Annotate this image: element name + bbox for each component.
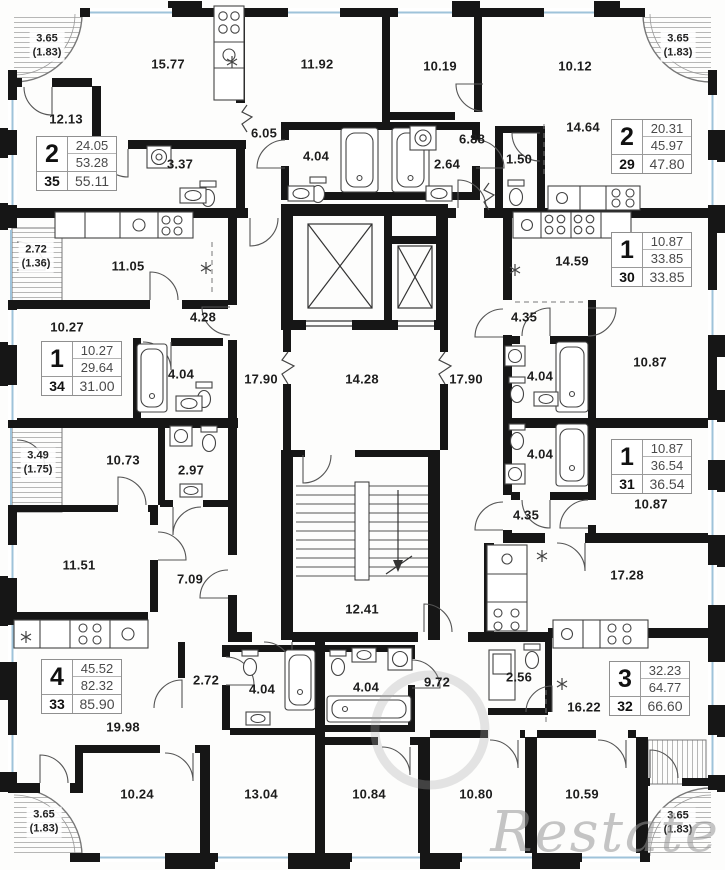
room-area-label: 10.87 [633, 355, 667, 370]
room-area-label: 3.37 [167, 157, 193, 172]
balcony-area-reduced: (1.83) [33, 47, 62, 59]
room-area-label: 16.22 [567, 700, 601, 715]
apartment-living-area: 10.27 [73, 342, 121, 359]
room-area-label: 10.84 [352, 787, 386, 802]
room-area-label: 10.73 [106, 453, 140, 468]
room-area-label: 15.77 [151, 57, 185, 72]
room-area-label: 1.50 [506, 152, 532, 167]
room-area-label: 6.05 [251, 126, 277, 141]
balcony-area: 3.65 [36, 33, 57, 45]
apartment-area: 36.54 [643, 457, 691, 474]
room-area-label: 10.80 [459, 787, 493, 802]
balcony-area-label: 3.65(1.83) [27, 807, 62, 838]
room-area-label: 19.98 [106, 720, 140, 735]
apartment-area: 64.77 [641, 679, 689, 696]
room-area-label: 17.90 [449, 372, 483, 387]
room-area-label: 4.04 [353, 680, 379, 695]
apartment-rooms-count: 1 [42, 342, 73, 376]
apartment-card: 1 10.87 36.54 31 36.54 [611, 439, 692, 494]
room-area-label: 9.72 [424, 675, 450, 690]
room-area-label: 4.04 [168, 367, 194, 382]
floor-plan: 15.77 12.13 3.37 6.05 11.92 4.04 2.64 10… [0, 0, 725, 870]
apartment-number: 31 [612, 474, 643, 493]
apartment-card: 2 20.31 45.97 29 47.80 [611, 119, 692, 174]
room-area-label: 4.35 [513, 508, 539, 523]
room-area-label: 14.59 [555, 254, 589, 269]
room-area-label: 2.72 [193, 673, 219, 688]
balcony-area: 2.72 [25, 244, 46, 256]
apartment-living-area: 20.31 [643, 120, 691, 137]
room-area-label: 17.28 [610, 568, 644, 583]
room-area-label: 11.92 [301, 57, 334, 72]
balcony-area-reduced: (1.83) [664, 824, 693, 836]
apartment-number: 35 [37, 171, 68, 190]
balcony-area: 3.65 [667, 810, 688, 822]
balcony-area-label: 2.72(1.36) [19, 242, 54, 273]
balcony-area: 3.49 [27, 450, 48, 462]
apartment-rooms-count: 1 [612, 233, 643, 267]
balcony-area-label: 3.49(1.75) [21, 448, 56, 479]
balcony-area-label: 3.65(1.83) [661, 31, 696, 62]
apartment-total-area: 31.00 [73, 376, 121, 395]
room-area-label: 4.35 [511, 310, 537, 325]
apartment-area: 82.32 [73, 677, 121, 694]
room-area-label: 10.24 [120, 787, 154, 802]
apartment-total-area: 47.80 [643, 154, 691, 173]
room-area-label: 4.28 [190, 310, 216, 325]
room-area-label: 4.04 [527, 369, 553, 384]
apartment-total-area: 66.60 [641, 696, 689, 715]
room-area-label: 13.04 [244, 787, 278, 802]
room-area-label: 14.28 [345, 372, 379, 387]
room-area-label: 10.87 [634, 497, 668, 512]
apartment-card: 1 10.87 33.85 30 33.85 [611, 232, 692, 287]
balcony-area-reduced: (1.75) [24, 464, 53, 476]
room-area-label: 10.59 [565, 787, 599, 802]
apartment-rooms-count: 1 [612, 440, 643, 474]
room-area-label: 11.05 [112, 259, 145, 274]
apartment-living-area: 10.87 [643, 440, 691, 457]
room-area-label: 12.13 [49, 112, 83, 127]
balcony-area-label: 3.65(1.83) [661, 808, 696, 839]
apartment-total-area: 55.11 [68, 171, 116, 190]
apartment-living-area: 10.87 [643, 233, 691, 250]
room-area-label: 14.64 [566, 120, 600, 135]
apartment-card: 2 24.05 53.28 35 55.11 [36, 136, 117, 191]
apartment-total-area: 85.90 [73, 694, 121, 713]
balcony-area-reduced: (1.36) [22, 258, 51, 270]
apartment-card: 3 32.23 64.77 32 66.60 [609, 661, 690, 716]
balcony-area-label: 3.65(1.83) [30, 31, 65, 62]
room-area-label: 4.04 [249, 682, 275, 697]
apartment-living-area: 45.52 [73, 660, 121, 677]
apartment-number: 29 [612, 154, 643, 173]
room-area-label: 12.41 [345, 602, 379, 617]
apartment-number: 30 [612, 267, 643, 286]
room-area-label: 2.56 [506, 670, 532, 685]
apartment-living-area: 32.23 [641, 662, 689, 679]
room-area-label: 6.88 [459, 132, 485, 147]
room-area-label: 7.09 [177, 572, 203, 587]
room-area-label: 2.64 [434, 157, 460, 172]
room-area-label: 10.19 [423, 59, 457, 74]
room-area-label: 4.04 [303, 149, 329, 164]
room-area-label: 11.51 [63, 558, 96, 573]
balcony-area: 3.65 [33, 809, 54, 821]
room-area-label: 4.04 [527, 447, 553, 462]
apartment-rooms-count: 2 [37, 137, 68, 171]
room-area-label: 17.90 [244, 372, 278, 387]
apartment-area: 45.97 [643, 137, 691, 154]
apartment-number: 32 [610, 696, 641, 715]
room-area-label: 2.97 [178, 463, 204, 478]
balcony-area-reduced: (1.83) [30, 823, 59, 835]
apartment-total-area: 36.54 [643, 474, 691, 493]
staircase-icon [296, 482, 428, 580]
apartment-rooms-count: 2 [612, 120, 643, 154]
apartment-area: 53.28 [68, 154, 116, 171]
apartment-card: 1 10.27 29.64 34 31.00 [41, 341, 122, 396]
apartment-total-area: 33.85 [643, 267, 691, 286]
apartment-card: 4 45.52 82.32 33 85.90 [41, 659, 122, 714]
apartment-number: 33 [42, 694, 73, 713]
apartment-rooms-count: 3 [610, 662, 641, 696]
room-area-label: 10.27 [50, 320, 84, 335]
apartment-number: 34 [42, 376, 73, 395]
balcony-area-reduced: (1.83) [664, 47, 693, 59]
apartment-living-area: 24.05 [68, 137, 116, 154]
apartment-rooms-count: 4 [42, 660, 73, 694]
room-area-label: 10.12 [558, 59, 592, 74]
balcony-area: 3.65 [667, 33, 688, 45]
apartment-area: 29.64 [73, 359, 121, 376]
apartment-area: 33.85 [643, 250, 691, 267]
